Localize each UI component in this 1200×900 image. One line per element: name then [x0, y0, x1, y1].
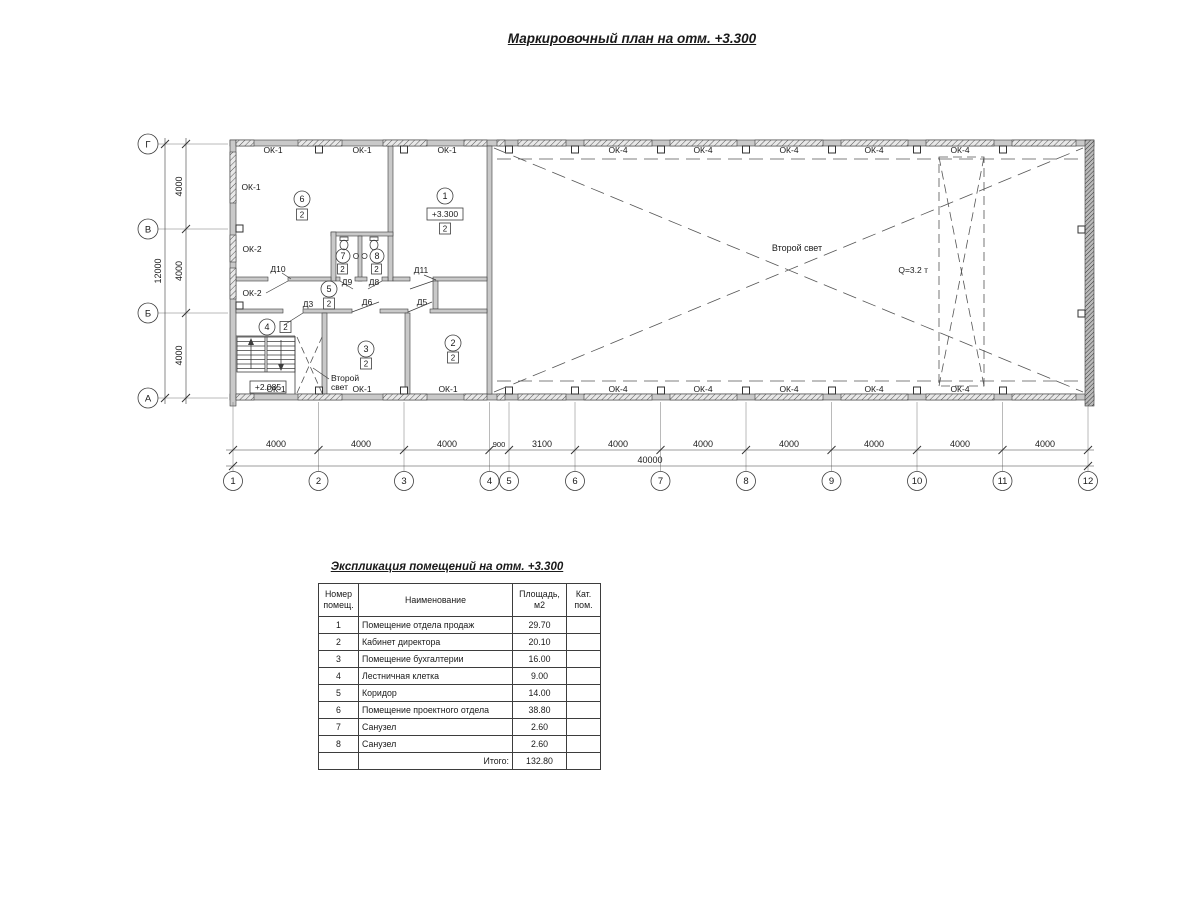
explication-title: Экспликация помещений на отм. +3.300 — [318, 561, 576, 573]
room-num-cell: 2 — [319, 634, 359, 651]
door-label: Д6 — [362, 297, 373, 307]
dimension-labels-left: 4000 4000 4000 12000 — [153, 176, 184, 365]
room-category: 2 — [340, 265, 345, 274]
room-number: 1 — [442, 191, 447, 201]
axis-label: 5 — [506, 476, 511, 487]
dim-total-label: 12000 — [153, 258, 163, 283]
dim-label: 4000 — [437, 439, 457, 449]
room-area-cell: 16.00 — [513, 651, 567, 668]
room-name-cell: Коридор — [359, 685, 513, 702]
room-number: 8 — [374, 251, 379, 261]
window-label: ОК-4 — [693, 384, 712, 394]
total-empty-cell — [319, 753, 359, 770]
axis-label: 10 — [912, 476, 923, 487]
table-row: 1 Помещение отдела продаж 29.70 — [319, 617, 601, 634]
room-number: 3 — [363, 344, 368, 354]
window-label: ОК-4 — [693, 145, 712, 155]
explication-table: Номер помещ. Наименование Площадь, м2 Ка… — [318, 583, 601, 770]
window-label: ОК-4 — [950, 145, 969, 155]
window-label: ОК-4 — [864, 145, 883, 155]
axis-label: 8 — [743, 476, 748, 487]
axis-extension-lines — [158, 144, 1088, 471]
second-light-dashed-lines — [494, 148, 1083, 392]
dim-label: 4000 — [266, 439, 286, 449]
room-area-cell: 38.80 — [513, 702, 567, 719]
room-category: 2 — [374, 265, 379, 274]
table-row: 3 Помещение бухгалтерии 16.00 — [319, 651, 601, 668]
level-mark: +2.085 — [255, 382, 282, 392]
room-area-cell: 9.00 — [513, 668, 567, 685]
dim-label: 4000 — [174, 261, 184, 281]
room-cat-cell — [567, 685, 601, 702]
dim-label: 900 — [493, 440, 506, 449]
room-area-cell: 2.60 — [513, 719, 567, 736]
col-header-num: Номер помещ. — [319, 584, 359, 617]
room-num-cell: 1 — [319, 617, 359, 634]
col-header-cat: Кат. пом. — [567, 584, 601, 617]
window-label: ОК-1 — [437, 145, 456, 155]
room-name-cell: Помещение отдела продаж — [359, 617, 513, 634]
room-num-cell: 5 — [319, 685, 359, 702]
window-label: ОК-1 — [263, 145, 282, 155]
room-name-cell: Кабинет директора — [359, 634, 513, 651]
window-label: ОК-4 — [864, 384, 883, 394]
room-number: 5 — [326, 284, 331, 294]
room-category: 2 — [451, 354, 456, 363]
room-number: 2 — [450, 338, 455, 348]
col-header-area: Площадь, м2 — [513, 584, 567, 617]
room-cat-cell — [567, 719, 601, 736]
door-leaves — [266, 273, 436, 379]
dim-total-label: 40000 — [637, 455, 662, 465]
axis-label: 9 — [829, 476, 834, 487]
window-label: ОК-4 — [608, 145, 627, 155]
door-label: Д10 — [270, 264, 285, 274]
room-category: 2 — [300, 211, 305, 220]
axis-label: Б — [145, 309, 151, 320]
room-name-cell: Лестничная клетка — [359, 668, 513, 685]
axis-label: 2 — [316, 476, 321, 487]
window-label: ОК-2 — [242, 288, 261, 298]
dim-label: 4000 — [351, 439, 371, 449]
room-area-cell: 20.10 — [513, 634, 567, 651]
window-label: ОК-1 — [352, 384, 371, 394]
explication-section: Экспликация помещений на отм. +3.300 Ном… — [318, 561, 576, 770]
window-label: ОК-1 — [352, 145, 371, 155]
dim-label: 4000 — [174, 176, 184, 196]
axis-label: 7 — [658, 476, 663, 487]
room-number: 7 — [340, 251, 345, 261]
axis-label: Г — [145, 140, 150, 151]
door-label: Д3 — [303, 299, 314, 309]
total-area-cell: 132.80 — [513, 753, 567, 770]
room-area-cell: 14.00 — [513, 685, 567, 702]
room-cat-cell — [567, 634, 601, 651]
room-area-cell: 29.70 — [513, 617, 567, 634]
door-label: Д11 — [414, 265, 429, 275]
axis-label: 4 — [487, 476, 492, 487]
dim-label: 4000 — [779, 439, 799, 449]
dim-label: 4000 — [174, 345, 184, 365]
axis-label: 6 — [572, 476, 577, 487]
dimension-ticks — [161, 140, 1092, 470]
window-label: ОК-2 — [242, 244, 261, 254]
table-row: 4 Лестничная клетка 9.00 — [319, 668, 601, 685]
room-cat-cell — [567, 617, 601, 634]
second-light-label: Второй свет — [772, 243, 822, 253]
drawing-sheet: Маркировочный план на отм. +3.300 — [0, 0, 1200, 900]
axis-label: 3 — [401, 476, 406, 487]
crane-symbol — [939, 157, 984, 386]
door-label: Д8 — [369, 277, 380, 287]
room-category: 2 — [283, 323, 288, 332]
room-cat-cell — [567, 668, 601, 685]
door-labels: Д10 Д9 Д8 Д11 Д3 Д6 Д5 — [270, 264, 428, 309]
room-category: 2 — [327, 300, 332, 309]
room-cat-cell — [567, 702, 601, 719]
room-cat-cell — [567, 651, 601, 668]
table-row: 6 Помещение проектного отдела 38.80 — [319, 702, 601, 719]
room-category: 2 — [364, 360, 369, 369]
dim-label: 4000 — [693, 439, 713, 449]
room-num-cell: 7 — [319, 719, 359, 736]
room-cat-cell — [567, 736, 601, 753]
window-labels: ОК-1 ОК-1 ОК-1 ОК-1 ОК-2 ОК-2 ОК-1 ОК-1 … — [241, 145, 969, 394]
room-area-cell: 2.60 — [513, 736, 567, 753]
window-label: ОК-4 — [779, 145, 798, 155]
table-row: 7 Санузел 2.60 — [319, 719, 601, 736]
stair-void-dashed — [297, 337, 322, 393]
room-name-cell: Санузел — [359, 736, 513, 753]
dim-label: 4000 — [608, 439, 628, 449]
total-cat-cell — [567, 753, 601, 770]
window-label: ОК-1 — [241, 182, 260, 192]
second-light-label-stair-line2: свет — [331, 382, 348, 392]
window-strips — [230, 140, 1076, 400]
room-name-cell: Помещение бухгалтерии — [359, 651, 513, 668]
axis-label: А — [145, 394, 152, 405]
axis-label: 1 — [230, 476, 235, 487]
floor-plan: 1 2 3 4 5 6 7 8 9 10 11 12 Г В Б А 4000 … — [0, 0, 1200, 545]
table-header-row: Номер помещ. Наименование Площадь, м2 Ка… — [319, 584, 601, 617]
door-label: Д9 — [342, 277, 353, 287]
room-name-cell: Санузел — [359, 719, 513, 736]
total-label-cell: Итого: — [359, 753, 513, 770]
room-num-cell: 8 — [319, 736, 359, 753]
room-number: 6 — [299, 194, 304, 204]
table-row: 8 Санузел 2.60 — [319, 736, 601, 753]
col-header-name: Наименование — [359, 584, 513, 617]
window-label: ОК-4 — [608, 384, 627, 394]
axis-label: В — [145, 225, 151, 236]
sink-icon — [362, 253, 367, 258]
axis-label: 12 — [1083, 476, 1094, 487]
dim-label: 4000 — [864, 439, 884, 449]
table-row: 5 Коридор 14.00 — [319, 685, 601, 702]
axis-label: 11 — [998, 476, 1008, 487]
room-num-cell: 4 — [319, 668, 359, 685]
room-number: 4 — [264, 322, 269, 332]
room-num-cell: 3 — [319, 651, 359, 668]
window-label: ОК-4 — [950, 384, 969, 394]
table-total-row: Итого: 132.80 — [319, 753, 601, 770]
dim-label: 4000 — [1035, 439, 1055, 449]
dim-label: 3100 — [532, 439, 552, 449]
level-mark: +3.300 — [432, 209, 459, 219]
room-name-cell: Помещение проектного отдела — [359, 702, 513, 719]
table-row: 2 Кабинет директора 20.10 — [319, 634, 601, 651]
crane-capacity-label: Q=3.2 т — [898, 265, 928, 275]
room-num-cell: 6 — [319, 702, 359, 719]
window-label: ОК-1 — [438, 384, 457, 394]
room-category: 2 — [443, 225, 448, 234]
dim-label: 4000 — [950, 439, 970, 449]
window-label: ОК-4 — [779, 384, 798, 394]
door-label: Д5 — [417, 297, 428, 307]
